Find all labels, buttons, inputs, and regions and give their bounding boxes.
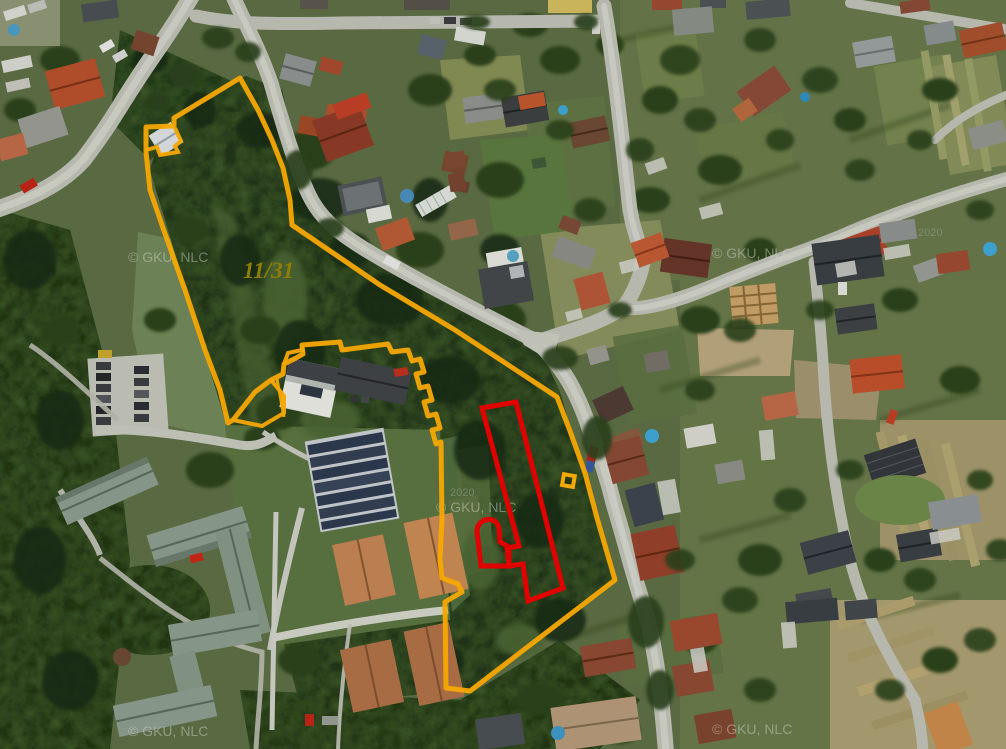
svg-text:© GKU, NLC: © GKU, NLC: [128, 249, 208, 265]
svg-text:2020: 2020: [450, 487, 474, 499]
svg-text:© GKU, NLC: © GKU, NLC: [436, 499, 516, 515]
svg-text:© GKU, NLC: © GKU, NLC: [712, 721, 792, 737]
svg-text:2020: 2020: [918, 227, 942, 239]
svg-text:11/31: 11/31: [243, 258, 294, 283]
svg-text:© GKU, NLC: © GKU, NLC: [128, 723, 208, 739]
svg-text:© GKU, NLC: © GKU, NLC: [712, 245, 792, 261]
